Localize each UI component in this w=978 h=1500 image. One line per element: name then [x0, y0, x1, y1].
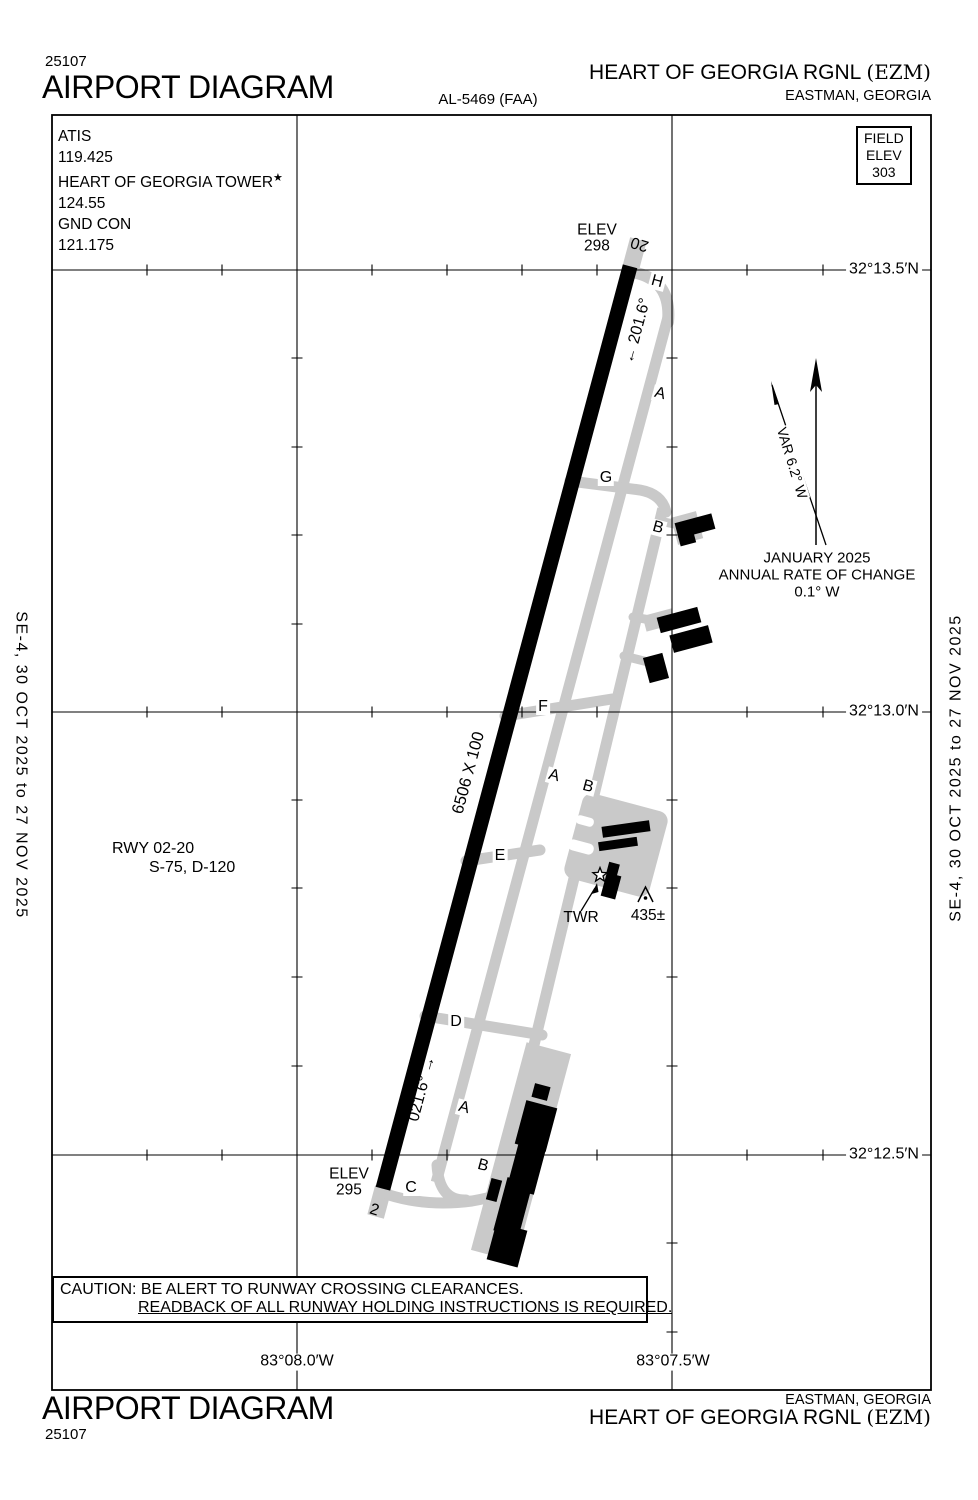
airport-name-bottom: HEART OF GEORGIA RGNL [589, 1406, 861, 1429]
page-title-top: AIRPORT DIAGRAM [42, 71, 334, 105]
taxiway-label-d: D [448, 1014, 464, 1030]
airport-name-top: HEART OF GEORGIA RGNL [589, 61, 861, 84]
taxiway-label-e: E [493, 848, 508, 864]
variation-date: JANUARY 2025 [719, 550, 916, 567]
magnetic-variation-arrowhead-icon [771, 381, 779, 405]
taxiway-label-c: C [403, 1180, 419, 1196]
latitude-label-1: 32°13.5′N [846, 262, 922, 279]
atis-frequency: 119.425 [58, 147, 283, 168]
latitude-label-2: 32°13.0′N [846, 704, 922, 721]
field-elev-label2: ELEV [864, 147, 904, 164]
building [643, 653, 669, 683]
variation-rate-label: ANNUAL RATE OF CHANGE [719, 567, 916, 584]
ground-frequency: 121.175 [58, 235, 283, 256]
runway-02-elevation: ELEV 295 [329, 1167, 369, 1200]
city-state-top: EASTMAN, GEORGIA [785, 89, 931, 104]
airport-title-bottom: HEART OF GEORGIA RGNL (EZM) [589, 1407, 931, 1429]
airport-code-top: (EZM) [866, 60, 931, 84]
runway-02-20 [376, 264, 638, 1190]
caution-box: CAUTION: BE ALERT TO RUNWAY CROSSING CLE… [52, 1276, 648, 1323]
field-elev-value: 303 [864, 164, 904, 181]
building [669, 625, 712, 653]
chart-number-bottom: 25107 [45, 1427, 87, 1443]
runway-designators: RWY 02-20 [112, 839, 235, 858]
atis-label: ATIS [58, 126, 283, 147]
runway-strength: S-75, D-120 [149, 858, 235, 877]
field-elevation-box: FIELD ELEV 303 [856, 126, 912, 185]
airport-code-bottom: (EZM) [866, 1405, 931, 1429]
longitude-label-2: 83°07.5′W [633, 1354, 712, 1371]
variation-rate-value: 0.1° W [719, 584, 916, 601]
caution-line-2: READBACK OF ALL RUNWAY HOLDING INSTRUCTI… [138, 1300, 646, 1317]
edge-note-right: SE-4, 30 OCT 2025 to 27 NOV 2025 [949, 614, 966, 921]
taxiway-label-g: G [598, 470, 614, 486]
tower-label: TWR [563, 910, 598, 926]
field-elev-label1: FIELD [864, 130, 904, 147]
tower-label: HEART OF GEORGIA TOWER★ [58, 168, 283, 193]
longitude-label-1: 83°08.0′W [257, 1354, 336, 1371]
page-title-bottom: AIRPORT DIAGRAM [42, 1392, 334, 1426]
runway-info: RWY 02-20 S-75, D-120 [112, 839, 235, 877]
airport-diagram-page: 25107 AIRPORT DIAGRAM AL-5469 (FAA) HEAR… [0, 0, 978, 1500]
obstruction-elevation: 435± [631, 908, 665, 924]
comms-block: ATIS 119.425 HEART OF GEORGIA TOWER★ 124… [58, 126, 283, 256]
airport-title-top: HEART OF GEORGIA RGNL (EZM) [589, 62, 931, 84]
edge-note-left: SE-4, 30 OCT 2025 to 27 NOV 2025 [12, 611, 29, 918]
ground-label: GND CON [58, 214, 283, 235]
taxiway-label-f: F [536, 699, 550, 715]
procedure-id: AL-5469 (FAA) [438, 92, 537, 108]
caution-line-1: CAUTION: BE ALERT TO RUNWAY CROSSING CLE… [60, 1282, 646, 1299]
chart-number-top: 25107 [45, 54, 87, 70]
tower-frequency: 124.55 [58, 193, 283, 214]
variation-note: JANUARY 2025 ANNUAL RATE OF CHANGE 0.1° … [719, 550, 916, 601]
obstruction-dot [644, 896, 648, 900]
taxiway-a-turnaround [437, 1165, 466, 1200]
runway-20-elevation: ELEV 298 [577, 223, 617, 256]
latitude-label-3: 32°12.5′N [846, 1147, 922, 1164]
tower-star: ★ [273, 172, 283, 184]
